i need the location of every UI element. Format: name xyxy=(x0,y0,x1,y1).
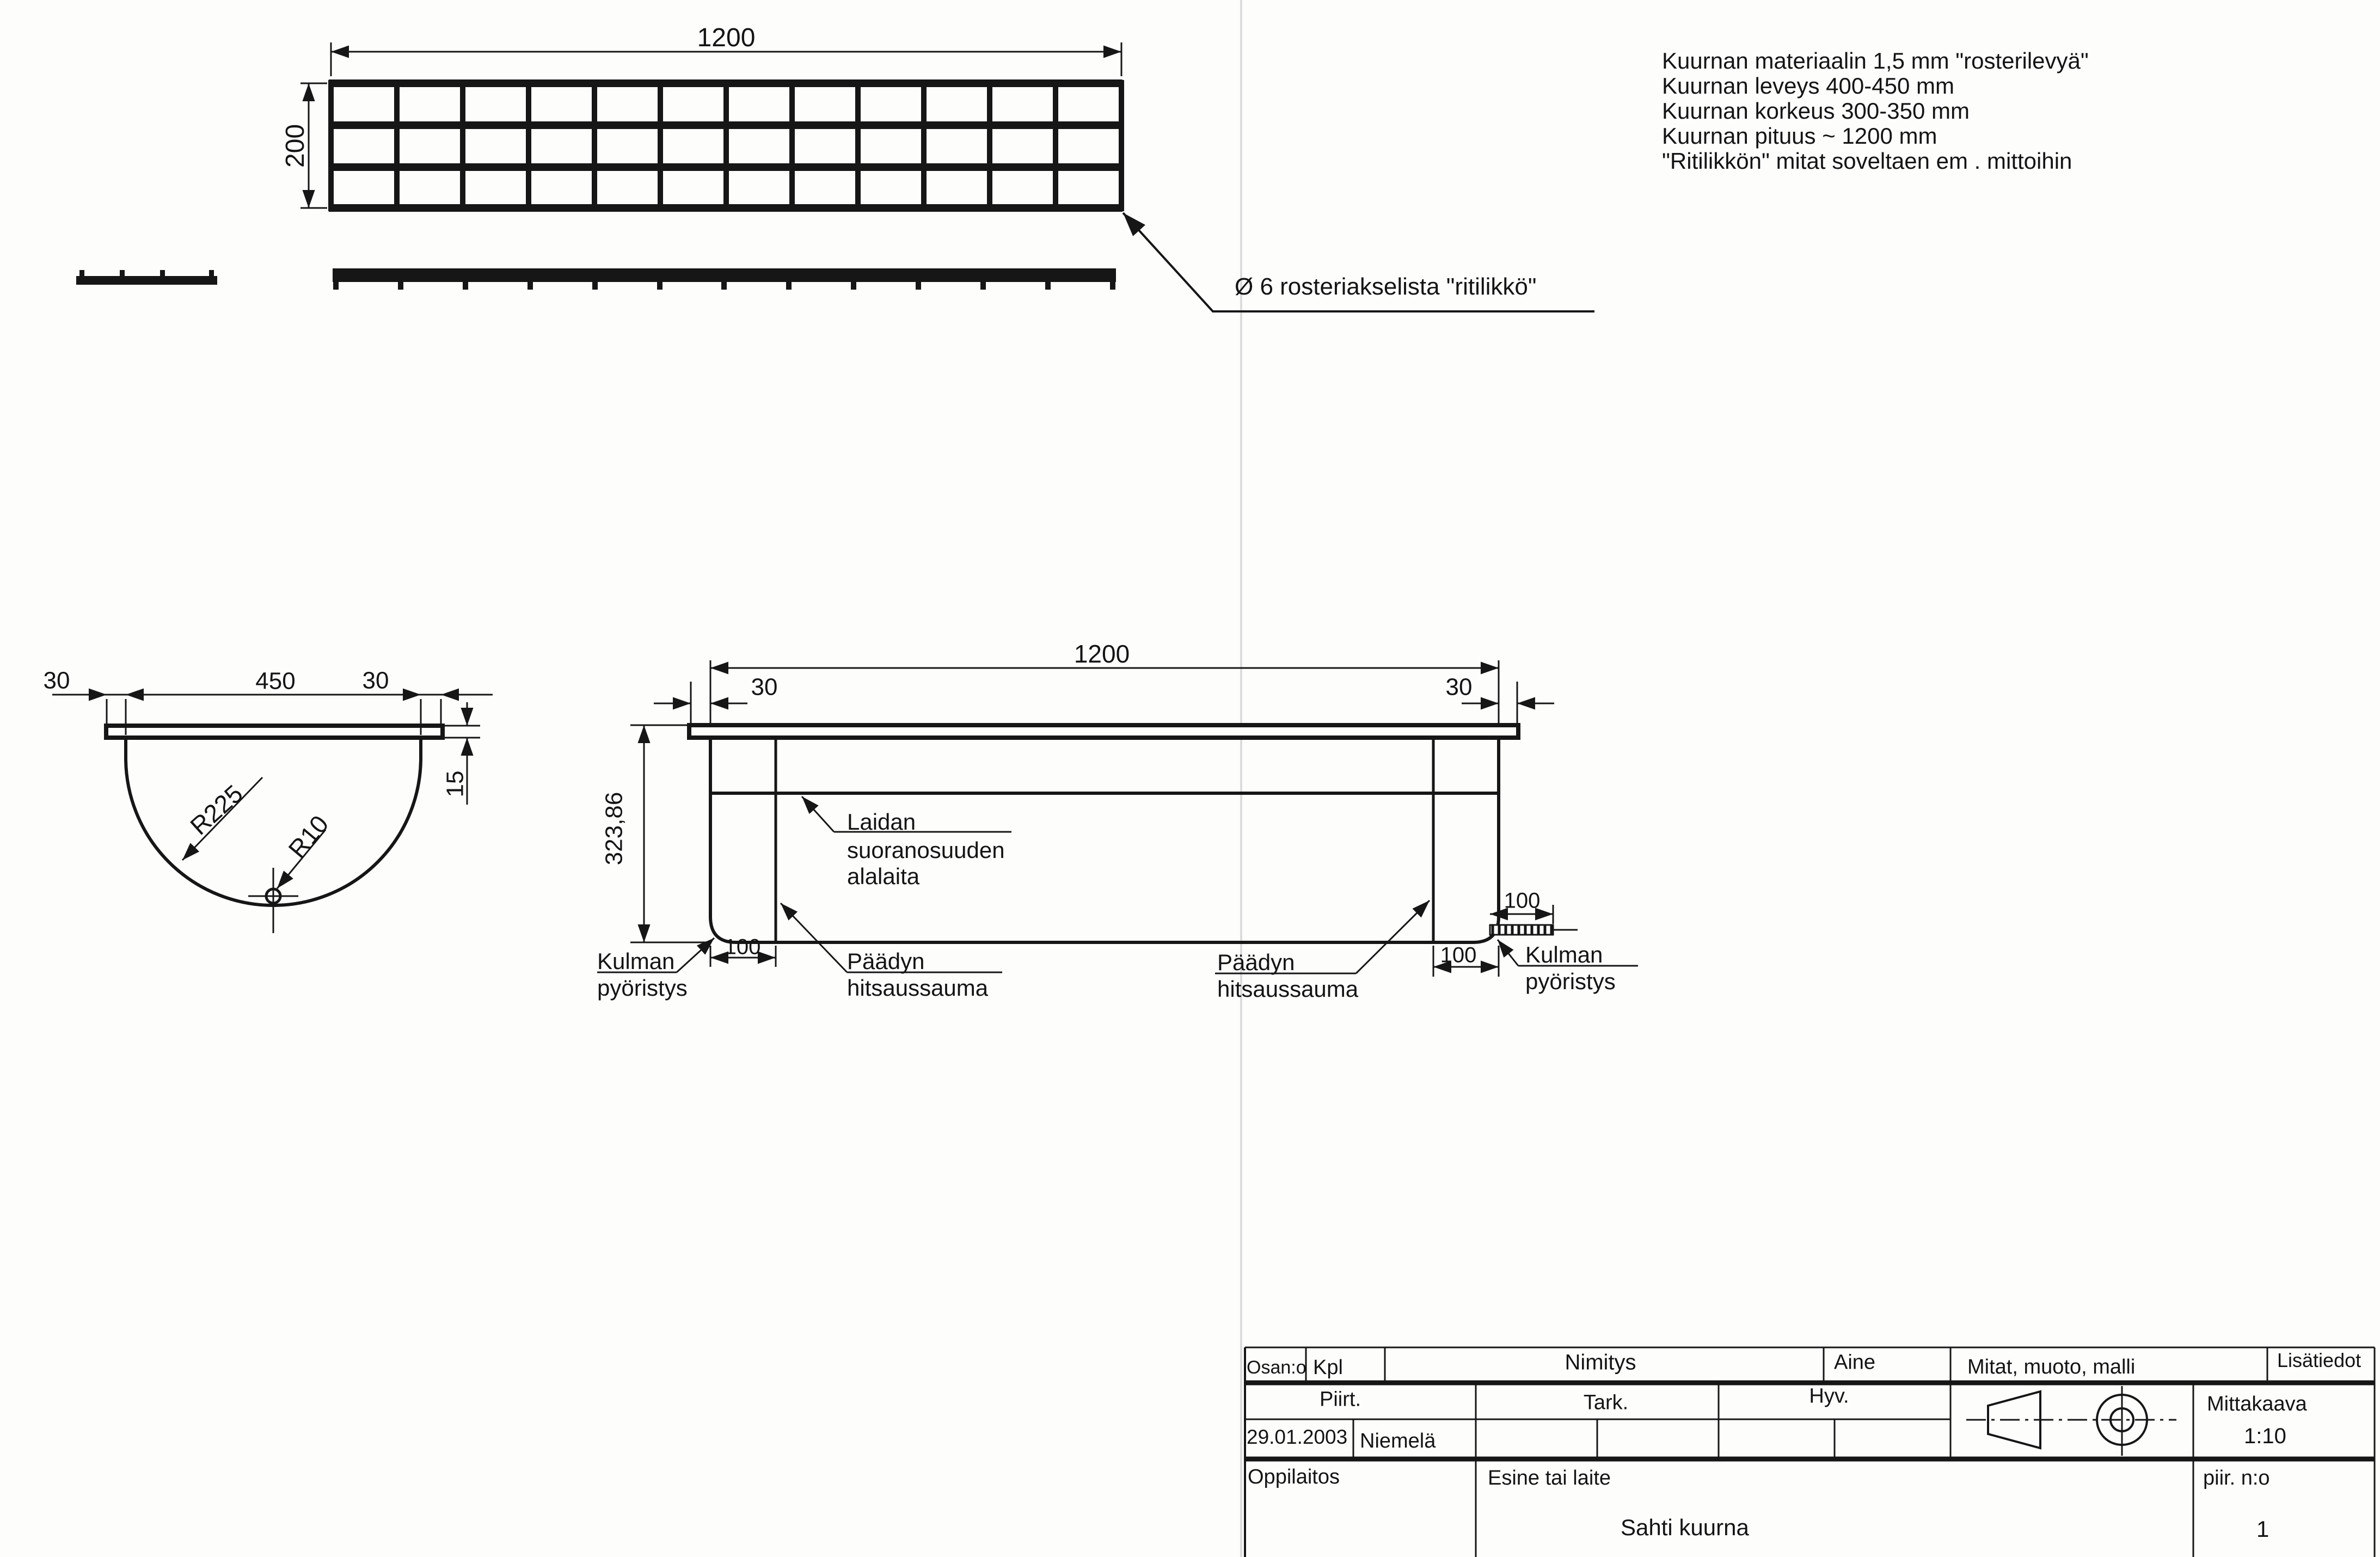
grate-end-view-bar xyxy=(76,270,217,285)
dim-sv-overhang-right: 30 xyxy=(1446,673,1473,700)
side-view xyxy=(597,660,1638,977)
grate-side-view-bar xyxy=(333,268,1116,290)
dim-grate-width: 200 xyxy=(281,124,310,168)
titleblock-part-no-header: Osan:o xyxy=(1247,1357,1306,1378)
titleblock-date: 29.01.2003 xyxy=(1247,1426,1347,1448)
weld-left-label-line2: hitsaussauma xyxy=(847,975,988,1001)
edge-label-line3: alalaita xyxy=(847,863,919,889)
grate-callout-label: Ø 6 rosteriakselista "ritilikkö" xyxy=(1235,273,1537,300)
titleblock-scale-value: 1:10 xyxy=(2244,1424,2286,1449)
drawing-title: Sahti kuurna xyxy=(1621,1515,1749,1540)
titleblock-dimensions-header: Mitat, muoto, malli xyxy=(1967,1356,2135,1379)
note-line: Kuurnan materiaalin 1,5 mm "rosterilevyä… xyxy=(1662,48,2089,73)
titleblock-sheet-no: 1 xyxy=(2256,1516,2269,1542)
weld-right-label-line1: Päädyn xyxy=(1217,949,1295,975)
titleblock-scale-header: Mittakaava xyxy=(2207,1393,2307,1416)
first-angle-projection-icon xyxy=(1966,1386,2176,1456)
corner-left-label-line1: Kulman xyxy=(597,948,674,974)
corner-left-label-line2: pyöristys xyxy=(597,975,688,1001)
note-line: "Ritilikkön" mitat soveltaen em . mittoi… xyxy=(1662,148,2072,174)
cross-section-view xyxy=(52,695,493,933)
dim-sv-height: 323,86 xyxy=(600,792,627,866)
titleblock-checked-header: Tark. xyxy=(1584,1392,1628,1415)
dim-grate-length: 1200 xyxy=(697,23,756,53)
corner-right-label-line1: Kulman xyxy=(1525,942,1603,967)
titleblock-school-label: Oppilaitos xyxy=(1248,1466,1340,1489)
titleblock-drawing-no-label: piir. n:o xyxy=(2203,1467,2270,1490)
edge-label-line2: suoranosuuden xyxy=(847,837,1005,863)
titleblock-material-header: Aine xyxy=(1834,1351,1875,1375)
titleblock-extra-info-header: Lisätiedot xyxy=(2277,1350,2361,1371)
note-line: Kuurnan pituus ~ 1200 mm xyxy=(1662,123,1937,149)
weld-right-label-line2: hitsaussauma xyxy=(1217,976,1358,1002)
dim-cs-rim-height: 15 xyxy=(441,771,468,798)
dim-cs-overhang-right: 30 xyxy=(363,667,389,694)
dim-weld-offset-left: 100 xyxy=(725,935,761,960)
titleblock-drawn-header: Piirt. xyxy=(1320,1388,1361,1412)
dim-corner-flat: 100 xyxy=(1504,889,1541,914)
corner-right-label-line2: pyöristys xyxy=(1525,968,1616,994)
weld-left-label-line1: Päädyn xyxy=(847,948,924,974)
dim-sv-overhang-left: 30 xyxy=(751,673,778,700)
drawing-linework xyxy=(0,0,2380,1557)
edge-label-line1: Laidan xyxy=(847,809,916,835)
dim-cs-inner-width: 450 xyxy=(255,667,295,694)
titleblock-approved-header: Hyv. xyxy=(1809,1385,1849,1408)
note-line: Kuurnan korkeus 300-350 mm xyxy=(1662,98,1970,124)
dim-cs-overhang-left: 30 xyxy=(44,667,70,694)
titleblock-object-label: Esine tai laite xyxy=(1488,1467,1611,1490)
grate-top-view xyxy=(300,42,1122,211)
titleblock-name-header: Nimitys xyxy=(1565,1351,1636,1375)
titleblock-qty-header: Kpl xyxy=(1313,1356,1343,1380)
note-line: Kuurnan leveys 400-450 mm xyxy=(1662,73,1954,99)
dim-weld-offset-right: 100 xyxy=(1440,943,1477,968)
dim-sv-length: 1200 xyxy=(1074,640,1130,669)
drawing-sheet: Kuurnan materiaalin 1,5 mm "rosterilevyä… xyxy=(0,0,2380,1557)
titleblock-drawn-by: Niemelä xyxy=(1360,1430,1436,1453)
